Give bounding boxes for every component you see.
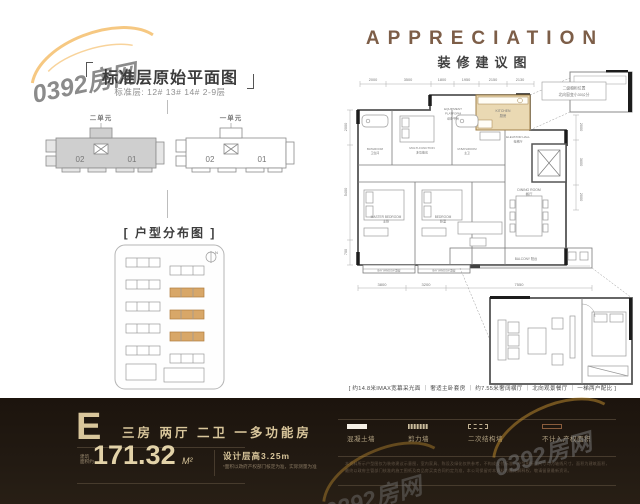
selling-points-caption: [ 约14.8米IMAX宽幕采光面 ｜ 奢适主卧套房 ｜ 约7.55米奢阔横厅 … [325,384,640,392]
svg-text:ELEVATOR HALL: ELEVATOR HALL [506,135,530,139]
disclaimer-line-2: 最终以政府主管部门核准的施工图纸及商品房买卖合同约定为准，本公司保留对本资料的最… [345,468,617,473]
svg-text:3200: 3200 [422,282,432,287]
legend-swatch-outline [542,424,562,429]
area-unit: M² [182,456,193,466]
living-room-detail [490,296,632,384]
legend-secondary-wall: 二次结构墙 [468,424,503,443]
svg-text:0392房网: 0392房网 [321,472,428,504]
divider [214,450,215,476]
svg-text:多功能房: 多功能房 [416,150,428,155]
sofa-icon [458,222,502,234]
unit2-plan: 02 01 [46,128,164,172]
bathtub-icon [456,115,478,127]
ceiling-height-note: 设计层高3.25m [223,450,290,462]
disclaimer-line-1: 本资料所示户型图仅为装修建议示意图，室内家具、陈设及绿化仅供参考，不构成交付标准… [345,461,617,466]
svg-text:MASTER BEDROOM: MASTER BEDROOM [371,215,402,219]
svg-text:KITCHEN: KITCHEN [496,109,511,113]
watermark-logo-icon: 0392房网 [286,414,474,504]
svg-text:BAY WINDOW 飘窗: BAY WINDOW 飘窗 [378,269,401,273]
furniture [362,115,588,260]
left-panel-subtitle: 标准层: 12# 13# 14# 2-9层 [86,86,254,98]
svg-text:BEDROOM: BEDROOM [435,215,452,219]
svg-text:1950: 1950 [462,78,470,82]
area-disclaimer-note: *面积以政府产权部门核定为准，实际测量为准 [223,464,317,470]
svg-text:700: 700 [344,249,348,255]
svg-text:主卫: 主卫 [464,151,470,155]
title-bracket-left [86,62,93,77]
unit1-plan: 02 01 [176,128,294,172]
legend-swatch-solid [347,424,367,429]
svg-text:3500: 3500 [404,78,412,82]
distribution-title: [ 户型分布图 ] [100,224,240,241]
svg-text:卫生间: 卫生间 [371,151,380,155]
unit1-room-02: 02 [206,155,215,164]
unit2-room-01: 01 [128,155,137,164]
units-diagram: 二单元 一单元 02 01 [38,110,310,188]
svg-text:3600: 3600 [579,158,583,166]
unit-type-description: 三房 两厅 二卫 一多功能房 [122,422,312,441]
svg-text:PLATFORM: PLATFORM [445,112,462,116]
coffee-table-icon [528,328,546,354]
svg-text:DINING ROOM: DINING ROOM [517,188,541,192]
svg-text:5400: 5400 [344,188,348,196]
legend-swatch-hatch [408,424,428,429]
svg-text:BAY WINDOW 飘窗: BAY WINDOW 飘窗 [433,269,456,273]
svg-text:餐厅: 餐厅 [526,192,533,197]
svg-text:主卧: 主卧 [383,219,390,224]
dining-table-icon [516,196,542,236]
svg-text:卧室: 卧室 [440,219,446,224]
svg-text:二级橱柜位置: 二级橱柜位置 [563,86,586,91]
svg-text:1800: 1800 [438,78,446,82]
tv-cabinet-icon [570,316,575,358]
site-distribution-map: N [112,242,227,392]
legend-non-property-area: 不计入产权面积 [542,424,591,443]
svg-text:电梯厅: 电梯厅 [513,139,522,144]
unit2-label: 二单元 [90,113,113,122]
area-value: 171.32 [93,442,176,469]
unit1-room-01: 01 [258,155,267,164]
svg-text:3800: 3800 [378,282,388,287]
svg-text:EQUIPMENT: EQUIPMENT [444,107,462,111]
divider [338,456,616,457]
area-prefix: 建筑 面积约 [80,454,94,465]
unit1-label: 一单元 [220,113,243,122]
floorplan-sheet: 0392房网 标准层原始平面图 标准层: 12# 13# 14# 2-9层 二单… [0,0,640,504]
plant-icon [580,252,588,260]
svg-text:MULTI-FUNCTION: MULTI-FUNCTION [409,146,434,150]
svg-text:2000: 2000 [344,123,348,131]
legend-concrete-wall: 混凝土墙 [347,424,375,443]
plant-icon [568,252,576,260]
svg-text:N: N [215,250,218,255]
main-floor-plan: 2000 3500 1800 1950 2150 2130 3800 3200 … [330,70,640,400]
elevator-shaft [532,144,566,182]
divider [77,483,245,484]
svg-text:2000: 2000 [579,193,583,201]
svg-text:设备平台: 设备平台 [447,116,459,121]
svg-text:2130: 2130 [516,78,524,82]
svg-text:2000: 2000 [579,123,583,131]
left-panel-title: 标准层原始平面图 [96,64,244,88]
svg-text:厨房: 厨房 [500,113,507,118]
connector-line [167,190,168,218]
callout-box: 二级橱柜位置 北向窗变小30公分 [542,82,606,100]
unit2-room-02: 02 [76,155,85,164]
svg-text:BALCONY 阳台: BALCONY 阳台 [515,256,537,261]
dimension-lines [347,81,592,291]
stove-icon [478,120,492,128]
divider [338,419,616,420]
coffee-table-icon [470,238,486,246]
svg-text:7550: 7550 [515,282,525,287]
appreciation-title: APPRECIATION [330,28,640,50]
sofa-icon [498,320,506,360]
svg-text:2000: 2000 [369,78,377,82]
footer-bar: E 三房 两厅 二卫 一多功能房 建筑 面积约 171.32 M² 设计层高3.… [0,398,640,504]
legend-swatch-dash [468,424,488,429]
svg-text:北向窗变小30公分: 北向窗变小30公分 [559,92,590,97]
svg-text:2150: 2150 [489,78,497,82]
legend-shear-wall: 剪力墙 [408,424,429,443]
appreciation-subtitle: 装修建议图 [330,52,640,71]
divider [338,485,616,486]
